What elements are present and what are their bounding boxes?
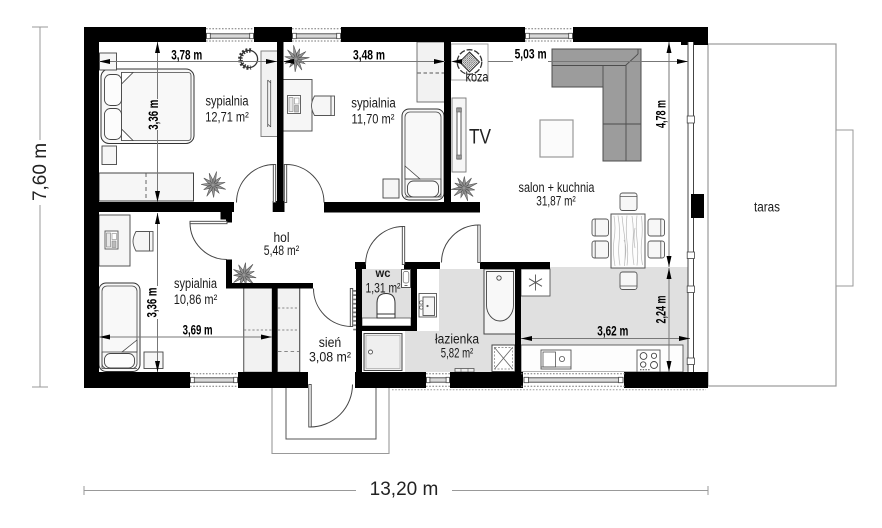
svg-text:11,70 m²: 11,70 m²	[352, 112, 395, 127]
svg-text:łazienka: łazienka	[435, 332, 479, 347]
svg-text:sypialnia: sypialnia	[351, 96, 396, 111]
svg-text:wc: wc	[375, 266, 391, 280]
svg-text:31,87 m²: 31,87 m²	[536, 194, 576, 209]
svg-text:koza: koza	[466, 70, 489, 85]
svg-text:3,69 m: 3,69 m	[183, 322, 213, 338]
svg-text:10,86 m²: 10,86 m²	[174, 292, 218, 307]
svg-text:5,48 m²: 5,48 m²	[264, 243, 300, 258]
svg-text:TV: TV	[469, 126, 491, 149]
svg-text:1,31 m²: 1,31 m²	[366, 281, 401, 296]
svg-text:7,60 m: 7,60 m	[30, 143, 51, 201]
svg-text:3,62 m: 3,62 m	[597, 323, 628, 339]
svg-text:taras: taras	[754, 200, 780, 215]
svg-text:3,08 m²: 3,08 m²	[309, 350, 351, 365]
svg-text:5,03 m: 5,03 m	[515, 46, 547, 62]
svg-text:4,78 m: 4,78 m	[653, 100, 669, 128]
svg-text:2,24 m: 2,24 m	[653, 296, 669, 324]
svg-text:12,71 m²: 12,71 m²	[205, 110, 249, 125]
svg-text:3,78 m: 3,78 m	[171, 46, 202, 62]
svg-text:sień: sień	[319, 335, 342, 350]
svg-text:sypialnia: sypialnia	[174, 276, 217, 291]
svg-text:13,20 m: 13,20 m	[370, 479, 439, 500]
svg-text:5,82 m²: 5,82 m²	[441, 346, 474, 361]
svg-text:3,36 m: 3,36 m	[145, 100, 161, 130]
svg-text:3,48 m: 3,48 m	[353, 46, 385, 62]
svg-text:sypialnia: sypialnia	[206, 94, 249, 109]
svg-text:3,36 m: 3,36 m	[144, 288, 160, 318]
